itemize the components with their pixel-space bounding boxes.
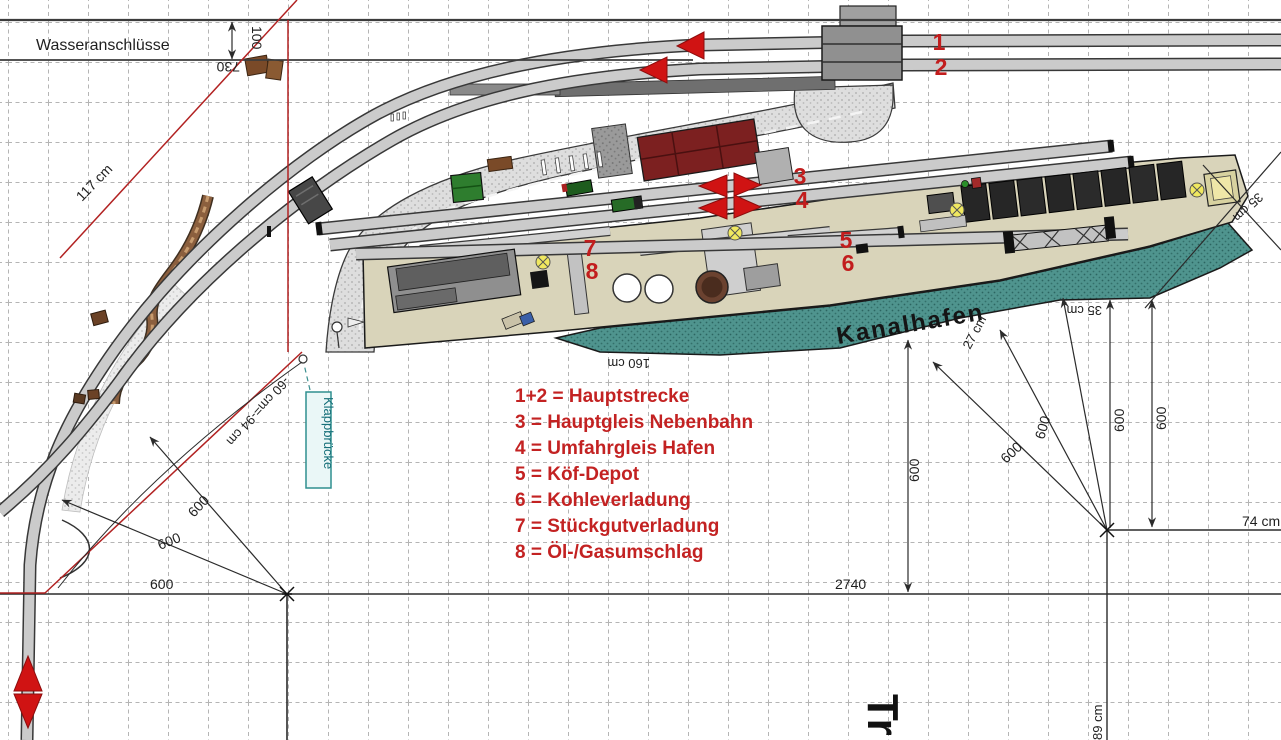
red-signal (971, 177, 981, 188)
legend-line-6: 7 = Stückgutverladung (515, 516, 719, 537)
crate (245, 55, 270, 76)
track-plan-drawing: Wasseranschlüsse 730 100 117 cm 1+2 = Ha… (0, 0, 1281, 740)
track-number-8: 8 (586, 258, 599, 284)
wasseranschluesse-label: Wasseranschlüsse (36, 37, 170, 54)
dim-600-d: 600 (906, 458, 922, 482)
legend-line-2: 3 = Hauptgleis Nebenbahn (515, 412, 753, 433)
dim-160cm: 160 cm (607, 356, 650, 371)
tr-partial-label: Tr (858, 694, 907, 736)
legend-line-1: 1+2 = Hauptstrecke (515, 386, 689, 407)
dim-100: 100 (249, 26, 265, 50)
legend-line-4: 5 = Köf-Depot (515, 464, 640, 485)
track-number-4: 4 (796, 187, 809, 213)
legend-line-7: 8 = Öl-/Gasumschlag (515, 542, 704, 563)
crate (73, 393, 85, 404)
gray-building (755, 148, 794, 185)
dim-89cm: 89 cm (1090, 705, 1105, 740)
dim-74cm: 74 cm (1242, 513, 1280, 529)
dark-cobble-yard (592, 124, 633, 178)
track-number-1: 1 (933, 29, 946, 55)
oil-tank-top (702, 277, 723, 298)
dim-600-g: 600 (1111, 408, 1127, 432)
crate (88, 389, 100, 399)
dim-600-a: 600 (150, 576, 174, 592)
dim-2740: 2740 (835, 576, 866, 592)
dim-730: 730 (216, 59, 240, 75)
legend-line-3: 4 = Umfahrgleis Hafen (515, 438, 715, 459)
dim-35cm-a: 35 cm (1067, 303, 1102, 318)
green-building (451, 173, 484, 203)
green-signal (962, 181, 969, 188)
white-storage-tank (645, 275, 673, 303)
track-number-2: 2 (935, 54, 948, 80)
klappbruecke-label: Klappbrücke (321, 397, 336, 469)
track-number-3: 3 (794, 163, 807, 189)
track-plan-canvas[interactable]: Wasseranschlüsse 730 100 117 cm 1+2 = Ha… (0, 0, 1281, 740)
legend-line-5: 6 = Kohleverladung (515, 490, 691, 511)
pier-hut (1204, 170, 1240, 206)
crate (266, 59, 283, 80)
white-storage-tank (613, 274, 641, 302)
loading-slab (744, 264, 781, 291)
shed-small (530, 270, 549, 289)
mooring-post (332, 322, 342, 332)
track-number-6: 6 (842, 250, 855, 276)
dim-600-h: 600 (1153, 406, 1169, 430)
leader-anchor (299, 355, 307, 363)
